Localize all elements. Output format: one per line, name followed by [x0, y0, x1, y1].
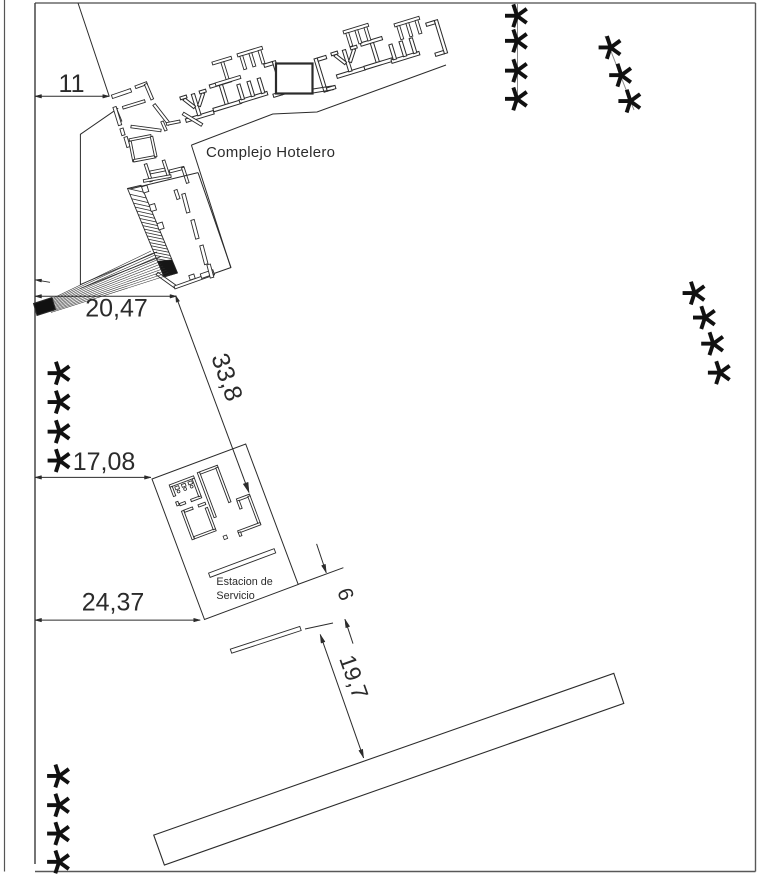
svg-text:17,08: 17,08: [73, 448, 136, 476]
svg-text:Servicio: Servicio: [216, 590, 254, 602]
svg-text:20,47: 20,47: [85, 295, 148, 323]
svg-text:Estacion de: Estacion de: [216, 576, 272, 588]
svg-text:Complejo Hotelero: Complejo Hotelero: [206, 144, 335, 161]
svg-text:11: 11: [59, 70, 85, 98]
svg-text:24,37: 24,37: [82, 589, 145, 617]
